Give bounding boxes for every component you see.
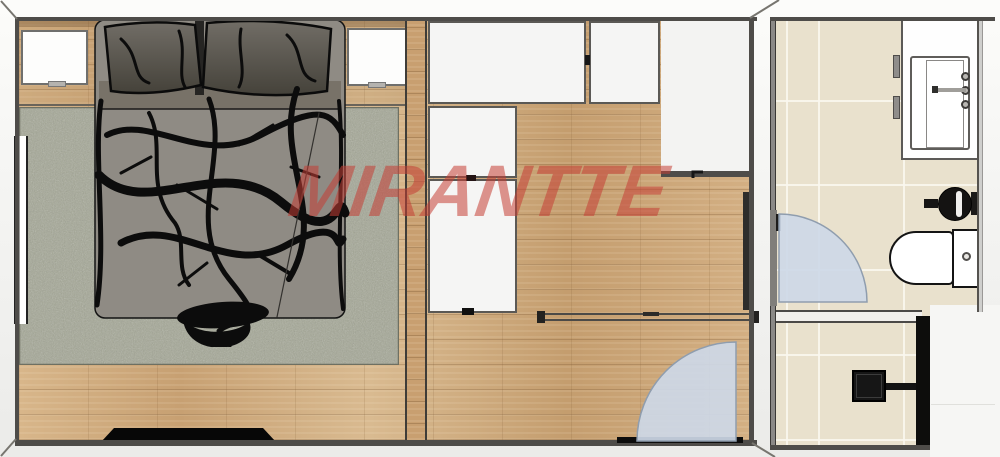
hallway-wall — [661, 171, 749, 177]
toilet-flush-button — [962, 252, 971, 261]
bedroom-wall-left — [15, 17, 19, 446]
wardrobe-top-left — [428, 21, 586, 104]
sliding-track-overlap — [643, 312, 659, 316]
round-basin-arm-left — [924, 199, 938, 208]
bathroom-door-handle — [776, 214, 781, 231]
faucet-knob-3 — [961, 100, 970, 109]
vanity-handle-top — [893, 55, 900, 78]
nightstand-right — [347, 28, 414, 86]
toilet-bowl — [889, 231, 954, 285]
faucet-spout — [938, 88, 966, 92]
wardrobe-side-handle-bottom — [462, 308, 474, 315]
faucet-tip — [932, 86, 938, 93]
faucet-knob-1 — [961, 72, 970, 81]
wardrobe-top-right — [589, 21, 660, 104]
sliding-track-rail-2 — [537, 319, 758, 321]
shower-head-inner — [856, 374, 882, 398]
sliding-track-bracket-left — [537, 311, 545, 323]
bathroom-wall-right — [977, 17, 983, 312]
shower-wall-profile — [916, 316, 930, 450]
bedroom-door-leaf — [617, 437, 743, 443]
bedroom-wall-right — [749, 17, 754, 446]
watermark-text: MIRANTTE — [285, 155, 672, 228]
wardrobe-top-handle — [585, 55, 590, 65]
vanity-handle-bottom — [893, 96, 900, 119]
sink-basin-inner — [926, 60, 964, 148]
nightstand-left — [21, 30, 88, 85]
pillow-right — [203, 21, 331, 95]
nightstand-right-handle — [368, 82, 386, 88]
round-black-basin — [938, 187, 972, 221]
bedroom-wall-top — [15, 17, 757, 21]
hallway-nook — [661, 21, 749, 171]
pillow-left — [105, 22, 201, 93]
exterior-notch — [930, 305, 1000, 457]
shower-partition-wall — [776, 310, 922, 323]
bathroom-wall-top — [770, 17, 995, 21]
round-basin-slot — [956, 191, 962, 217]
glass-panel-right — [743, 192, 749, 310]
window-mullion — [19, 136, 20, 324]
bathroom-wall-bottom — [770, 445, 930, 450]
exterior-notch-line — [931, 404, 995, 405]
floor-plan-canvas: MIRANTTE — [0, 0, 1000, 457]
nightstand-left-handle — [48, 81, 66, 87]
